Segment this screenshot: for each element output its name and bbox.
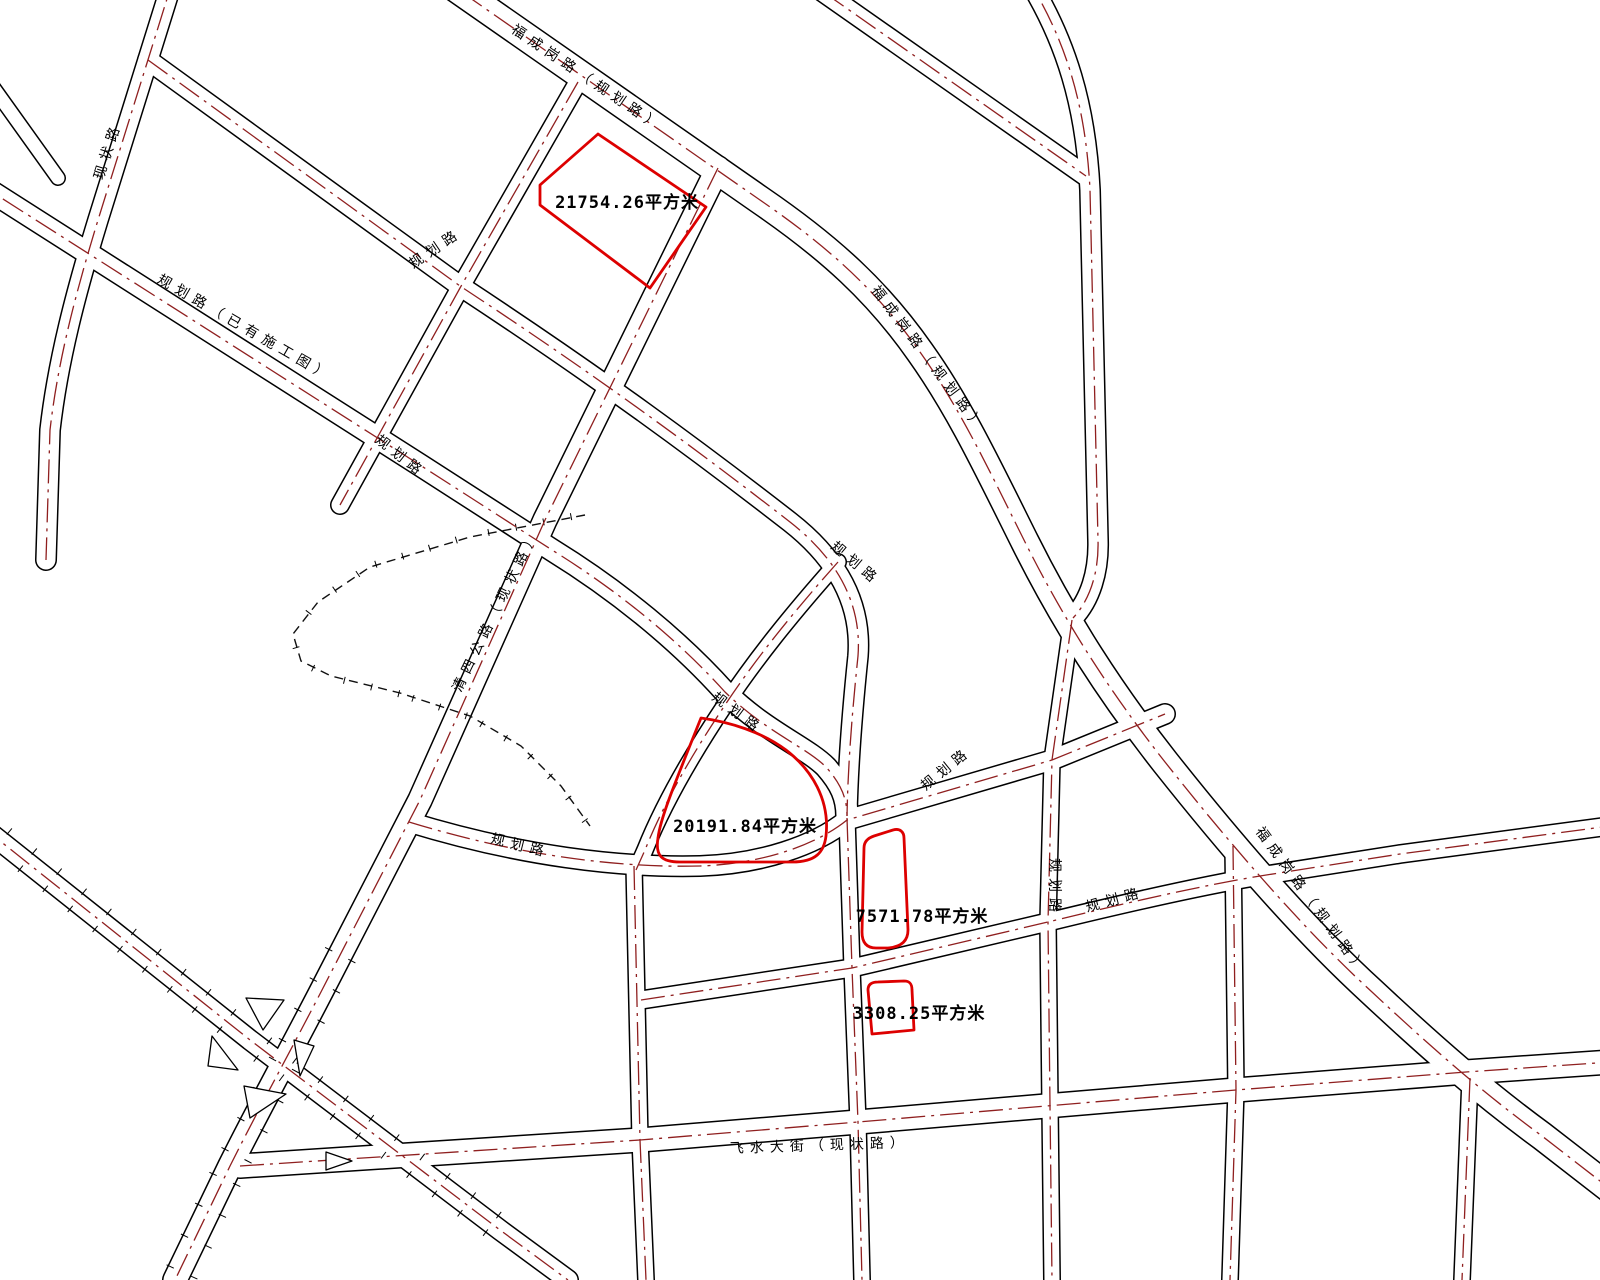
parcel-area-label-3308: 3308.25平方米 <box>853 1003 986 1024</box>
road-label-fuchenggang-right: 福成岗路（规划路） <box>868 283 989 436</box>
parcel-area-label-20191: 20191.84平方米 <box>673 816 817 837</box>
road-v4-fill <box>1048 620 1072 1280</box>
embankment-tick <box>32 849 37 855</box>
road-label-qingsi-gonglu: 清四公路（现状路） <box>450 526 543 695</box>
embankment-tick <box>412 695 414 702</box>
planning-map-viewport: 福成岗路（规划路） 现状路 规划路（已有施工图） 规划路 规划路 清四公路（现状… <box>0 0 1600 1280</box>
embankment-tick <box>205 1245 212 1248</box>
embankment-tick <box>488 529 489 536</box>
embankment-tick <box>356 571 360 577</box>
embankment-tick <box>344 677 346 684</box>
road-network-fills <box>0 0 1600 1280</box>
road-feishui-fill <box>240 1060 1600 1166</box>
road-fuchenggang-fill <box>430 0 1600 1212</box>
parcel-area-label-7571: 7571.78平方米 <box>856 906 989 927</box>
road-label-guihua-6-vertical: 规划路 <box>1046 858 1062 918</box>
traffic-island <box>208 1036 238 1070</box>
road-stub-topleft-fill <box>0 55 58 178</box>
parcel-area-label-21754: 21754.26平方米 <box>555 192 699 213</box>
embankment-tick <box>439 704 441 711</box>
embankment-tick <box>429 545 431 552</box>
parcel-outline-7571 <box>862 829 908 948</box>
embankment-tick <box>398 690 400 697</box>
embankment-tick <box>455 537 457 544</box>
embankment-tick <box>371 684 373 691</box>
embankment-tick <box>57 869 62 875</box>
embankment-tick <box>7 828 12 834</box>
embankment-tick <box>570 513 571 520</box>
traffic-island <box>246 998 284 1030</box>
embankment-tick <box>293 647 300 649</box>
map-canvas: 福成岗路（规划路） 现状路 规划路（已有施工图） 规划路 规划路 清四公路（现状… <box>0 0 1600 1280</box>
road-label-guihua-shigongtu: 规划路（已有施工图） <box>154 272 335 386</box>
embankment-tick <box>402 553 404 560</box>
embankment-tick <box>190 1276 197 1279</box>
road-label-fuchenggang-top: 福成岗路（规划路） <box>508 22 666 136</box>
embankment-tick <box>306 610 312 614</box>
embankment-tick <box>375 561 377 568</box>
